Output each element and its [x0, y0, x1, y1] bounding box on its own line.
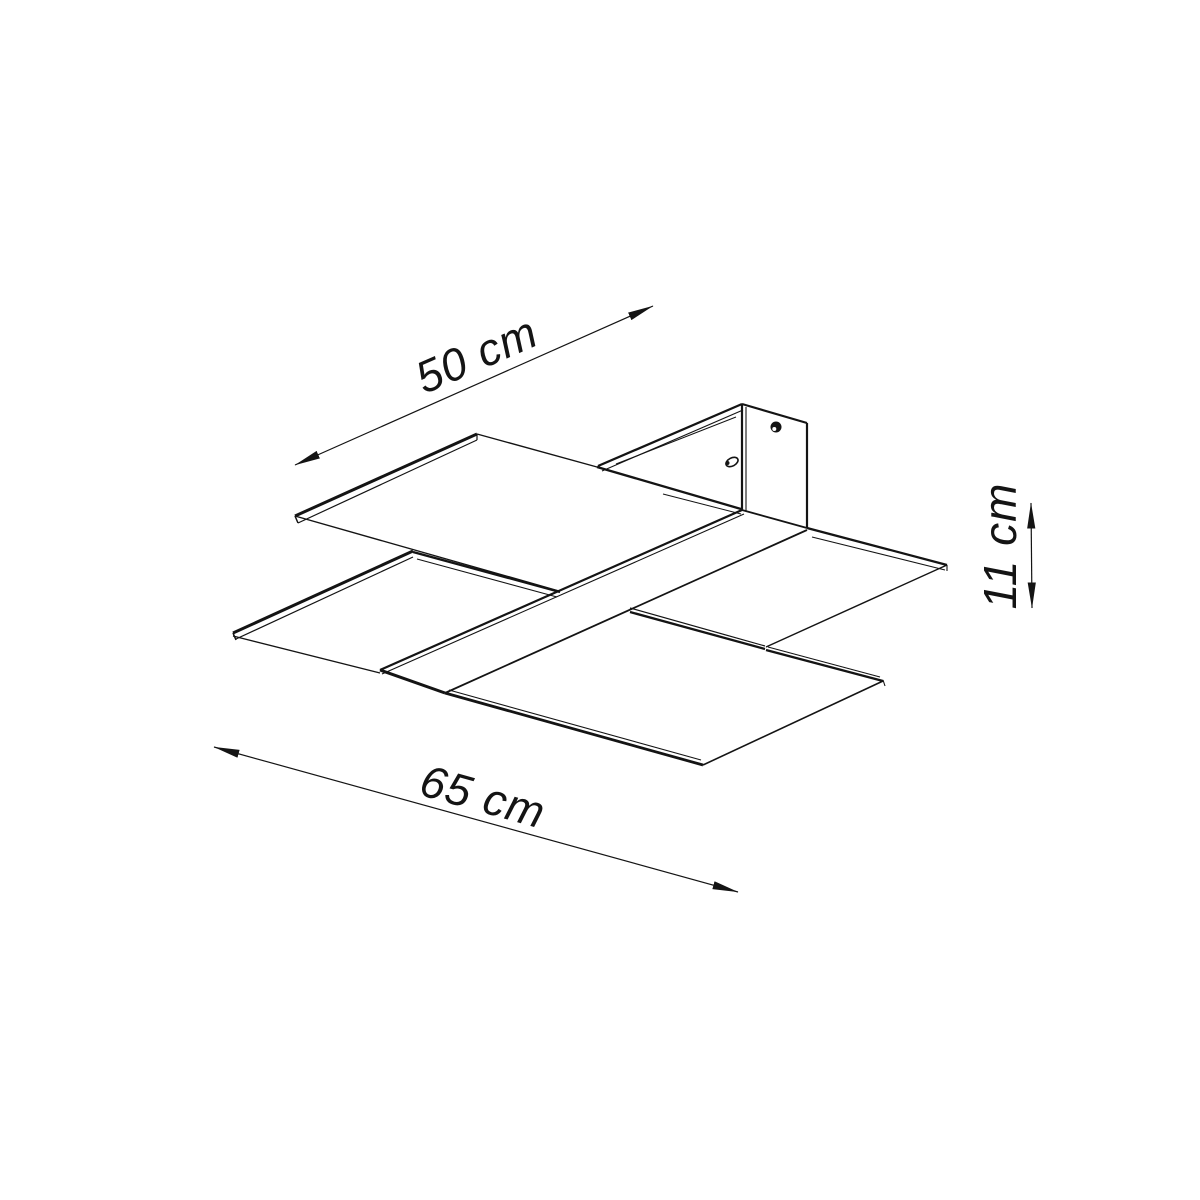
height-dimension-arrow	[1031, 503, 1032, 608]
depth-dimension-label: 50 cm	[408, 306, 545, 404]
ceiling-bracket	[742, 404, 807, 528]
upper-glass-panel	[295, 434, 947, 647]
screw-hole	[771, 422, 782, 433]
mounting-channel	[598, 404, 743, 471]
dimension-drawing-page: 50 cm 65 cm 11 cm	[0, 0, 1200, 1200]
diagonal-strap	[380, 510, 807, 693]
screw-hole-highlight	[772, 427, 776, 431]
height-dimension-label: 11 cm	[974, 483, 1026, 610]
lower-glass-panel	[233, 551, 885, 765]
wire-hole-shadow	[726, 461, 730, 465]
dimension-drawing-canvas: 50 cm 65 cm 11 cm	[0, 0, 1200, 1200]
dimension-width: 65 cm	[214, 747, 738, 892]
width-dimension-label: 65 cm	[415, 755, 552, 839]
dimension-height: 11 cm	[974, 483, 1032, 610]
